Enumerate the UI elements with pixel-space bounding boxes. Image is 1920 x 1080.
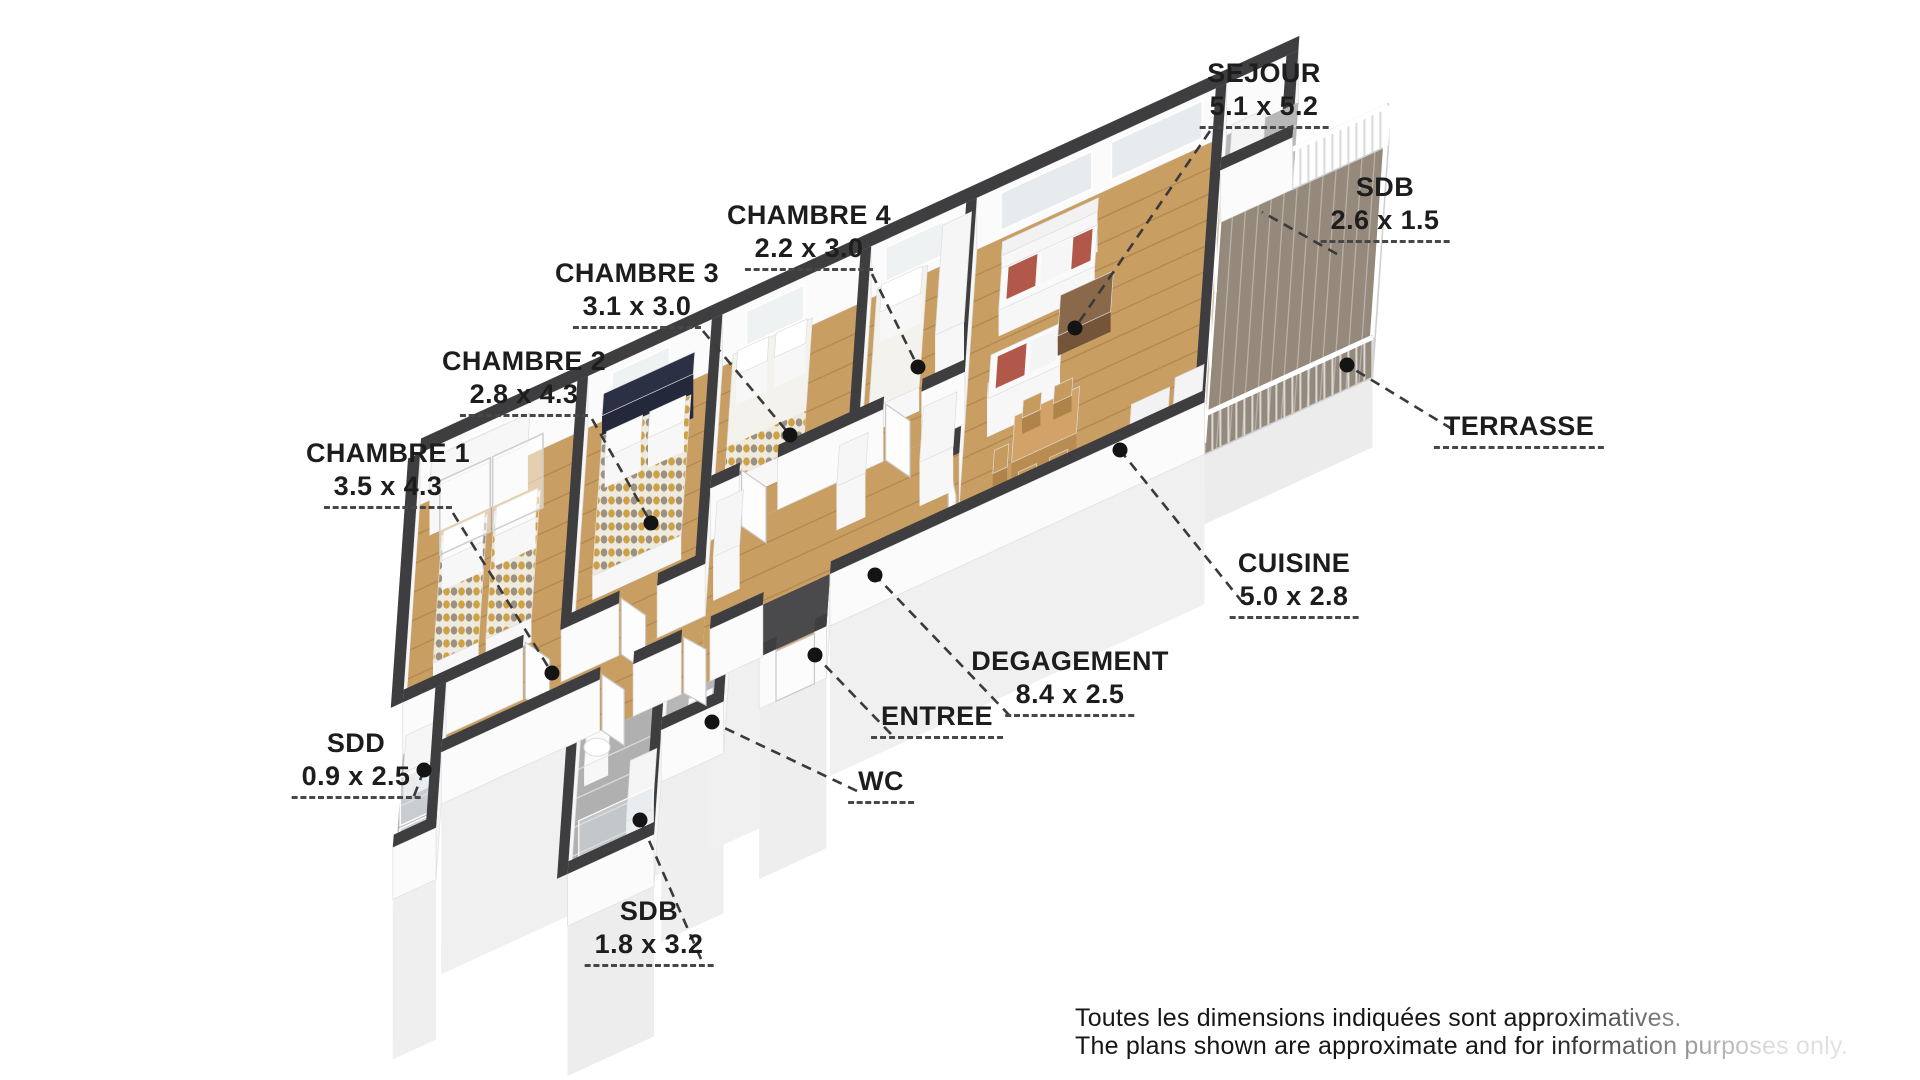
room-name: SDB [585, 895, 714, 928]
room-label-sdd: SDD 0.9 x 2.5 [292, 727, 421, 799]
room-label-chambre3: CHAMBRE 3 3.1 x 3.0 [555, 257, 719, 329]
room-dims: 5.0 x 2.8 [1230, 580, 1359, 619]
room-label-terrasse: TERRASSE [1434, 410, 1604, 449]
room-dims: 5.1 x 5.2 [1200, 90, 1329, 129]
room-name: WC [848, 765, 914, 804]
room-label-sejour: SEJOUR 5.1 x 5.2 [1200, 57, 1329, 129]
room-name: SDB [1321, 171, 1450, 204]
room-label-chambre4: CHAMBRE 4 2.2 x 3.0 [727, 199, 891, 271]
room-dims: 3.1 x 3.0 [573, 290, 702, 329]
floor-plan-3d [0, 0, 1920, 1080]
room-name: SDD [292, 727, 421, 760]
room-label-sdb-bottom: SDB 1.8 x 3.2 [585, 895, 714, 967]
room-name: CHAMBRE 2 [442, 345, 606, 378]
room-dims: 0.9 x 2.5 [292, 760, 421, 799]
room-dims: 8.4 x 2.5 [1006, 678, 1135, 717]
room-label-chambre2: CHAMBRE 2 2.8 x 4.3 [442, 345, 606, 417]
room-name: CHAMBRE 3 [555, 257, 719, 290]
room-label-wc: WC [848, 765, 914, 804]
watermark-fade [1540, 998, 1920, 1072]
room-label-chambre1: CHAMBRE 1 3.5 x 4.3 [306, 437, 470, 509]
room-name: SEJOUR [1200, 57, 1329, 90]
room-dims: 1.8 x 3.2 [585, 928, 714, 967]
room-dims: 2.8 x 4.3 [460, 378, 589, 417]
room-dims: 3.5 x 4.3 [324, 470, 453, 509]
room-name: CHAMBRE 1 [306, 437, 470, 470]
room-label-cuisine: CUISINE 5.0 x 2.8 [1230, 547, 1359, 619]
room-name: TERRASSE [1434, 410, 1604, 449]
room-name: CUISINE [1230, 547, 1359, 580]
room-dims: 2.6 x 1.5 [1321, 204, 1450, 243]
room-name: CHAMBRE 4 [727, 199, 891, 232]
room-name: DEGAGEMENT [971, 645, 1169, 678]
room-dims: 2.2 x 3.0 [745, 232, 874, 271]
room-name: ENTREE [871, 700, 1003, 739]
room-label-entree: ENTREE [871, 700, 1003, 739]
room-label-sdb-top: SDB 2.6 x 1.5 [1321, 171, 1450, 243]
floorplan-page: SEJOUR 5.1 x 5.2 SDB 2.6 x 1.5 TERRASSE … [0, 0, 1920, 1080]
